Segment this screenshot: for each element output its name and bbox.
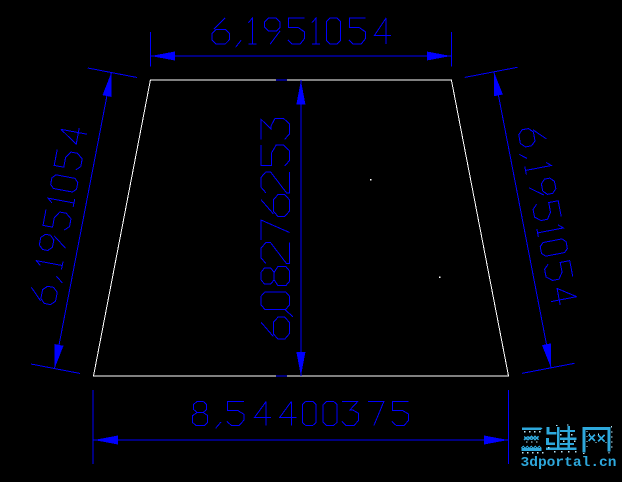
svg-text:3dportal.cn: 3dportal.cn: [521, 455, 617, 471]
